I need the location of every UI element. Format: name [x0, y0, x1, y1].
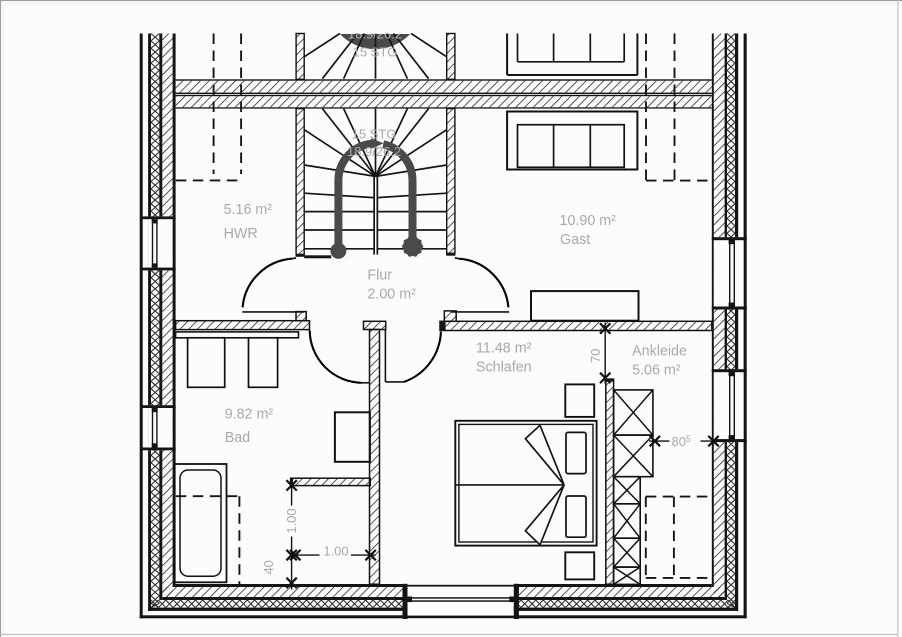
svg-text:5.06 m²: 5.06 m²: [632, 363, 681, 379]
svg-text:10.90 m²: 10.90 m²: [560, 213, 617, 229]
svg-text:9.82 m²: 9.82 m²: [225, 406, 274, 422]
svg-text:1.00: 1.00: [323, 544, 348, 559]
svg-text:Flur: Flur: [367, 267, 392, 283]
svg-text:11.48 m²: 11.48 m²: [476, 341, 532, 357]
svg-text:Schlafen: Schlafen: [476, 360, 532, 376]
svg-text:15 STG: 15 STG: [352, 127, 397, 142]
svg-text:2.00 m²: 2.00 m²: [367, 287, 416, 303]
svg-text:HWR: HWR: [224, 226, 258, 242]
svg-text:15 STG: 15 STG: [353, 45, 398, 60]
svg-text:70: 70: [588, 349, 603, 363]
svg-text:Bad: Bad: [225, 430, 250, 446]
svg-text:Gast: Gast: [560, 232, 590, 248]
svg-text:5.16 m²: 5.16 m²: [224, 202, 273, 218]
svg-text:1.00: 1.00: [284, 508, 299, 533]
svg-text:18.9/26.2: 18.9/26.2: [347, 144, 401, 159]
svg-text:40: 40: [261, 560, 276, 574]
svg-text:Ankleide: Ankleide: [632, 344, 687, 360]
